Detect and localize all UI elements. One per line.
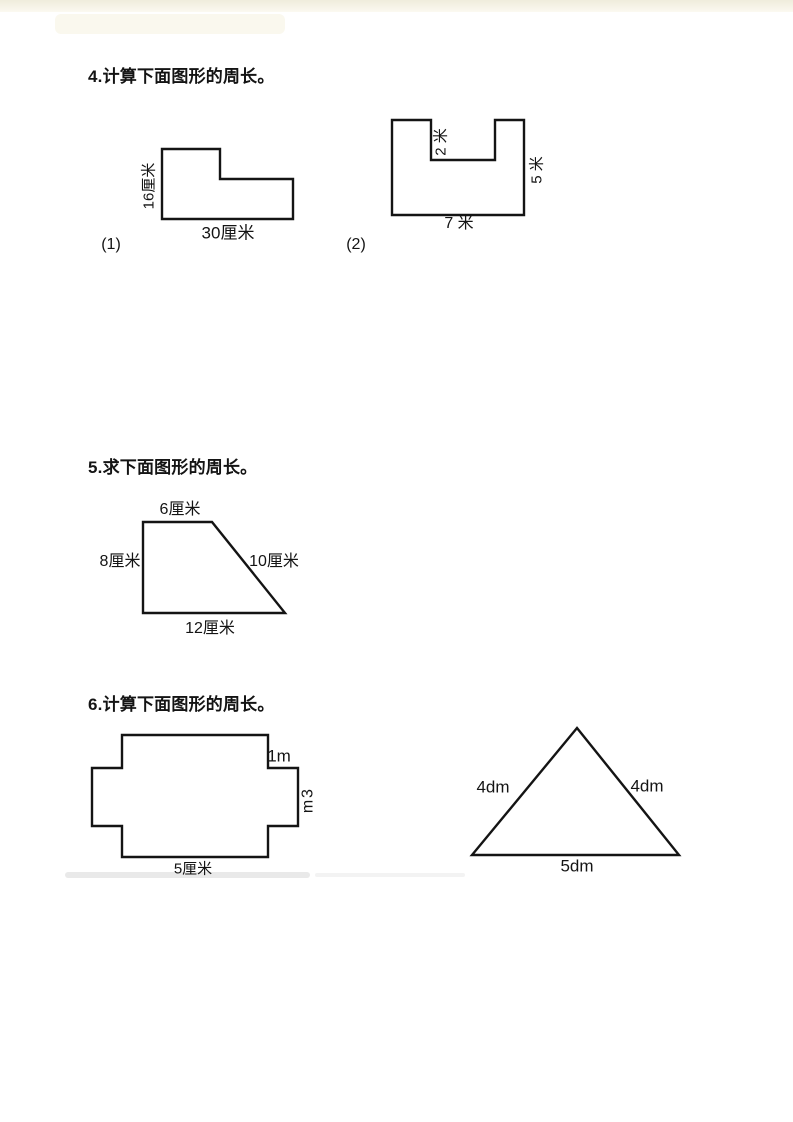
trapezoid-bottom-dimension: 12厘米 <box>185 621 235 637</box>
l-shape-bottom-dimension: 30厘米 <box>202 225 255 242</box>
u-shape-right-dimension: 5 米 <box>530 156 545 184</box>
scan-edge-strip <box>0 0 793 12</box>
l-shape-outline <box>162 149 293 219</box>
triangle-bottom-dimension: 5dm <box>560 858 593 875</box>
question-6-heading: 6.计算下面图形的周长。 <box>88 694 275 716</box>
scan-artifact-patch <box>55 14 285 34</box>
figure-1-caption: (1) <box>101 236 121 254</box>
cross-right-dimension-char: m <box>302 798 315 816</box>
trapezoid-left-dimension: 8厘米 <box>100 554 141 570</box>
cross-step-dimension: 1m <box>267 748 291 765</box>
cross-right-dimension: 3 m <box>299 787 317 813</box>
u-shape-outline <box>392 120 524 215</box>
cross-bottom-dimension: 5厘米 <box>174 862 212 877</box>
trapezoid-top-dimension: 6厘米 <box>160 502 201 518</box>
u-shape-bottom-dimension: 7 米 <box>444 216 473 232</box>
l-shape-left-dimension: 16厘米 <box>142 163 157 210</box>
triangle-left-dimension: 4dm <box>476 779 509 796</box>
scan-smudge <box>315 873 465 877</box>
l-shape-figure <box>159 146 297 224</box>
u-shape-figure <box>389 117 528 219</box>
u-shape-notch-dimension: 2 米 <box>434 128 449 156</box>
question-5-heading: 5.求下面图形的周长。 <box>88 457 257 479</box>
worksheet-page: 4.计算下面图形的周长。 16厘米 30厘米 (1) 2 米 5 米 7 米 (… <box>0 0 793 1122</box>
question-4-heading: 4.计算下面图形的周长。 <box>88 66 275 88</box>
triangle-right-dimension: 4dm <box>630 778 663 795</box>
figure-2-caption: (2) <box>346 236 366 254</box>
trapezoid-right-dimension: 10厘米 <box>249 554 299 570</box>
